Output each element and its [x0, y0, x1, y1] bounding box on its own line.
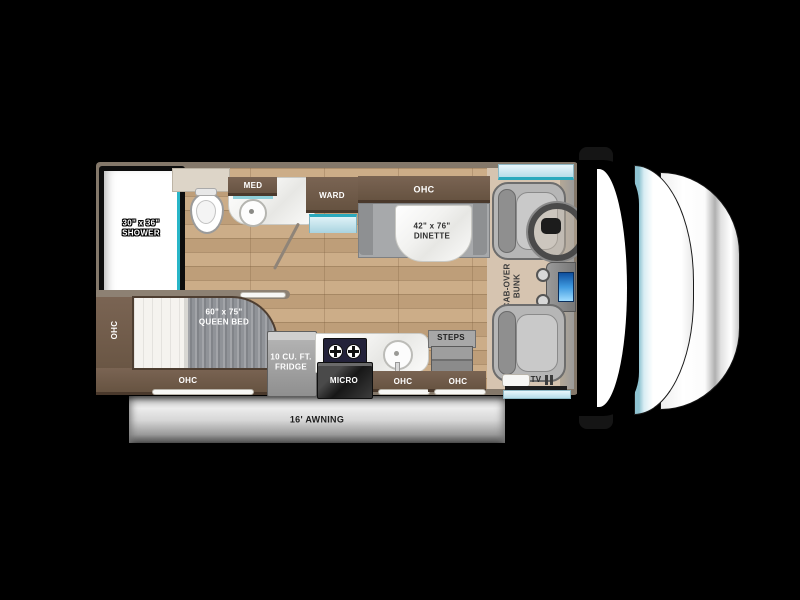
passenger-seat [492, 304, 566, 382]
steering-hub [541, 218, 561, 234]
cabover-bunk-label: CAB-OVER BUNK [502, 263, 521, 308]
vanity-sink-drain [249, 209, 254, 214]
dinette-bench-left [359, 204, 373, 255]
queen-bed-label: 60" x 75" QUEEN BED [199, 307, 249, 326]
microwave-label: MICRO [330, 376, 358, 386]
bottom-trim-3 [434, 389, 486, 395]
bed-blanket-folds [134, 298, 184, 368]
bottom-trim-2 [378, 389, 430, 395]
cab-window-bottom [503, 390, 571, 399]
kitchen-sink-drain [394, 351, 399, 356]
passenger-seat-cushion [516, 314, 558, 372]
ohc-bed-bottom-label: OHC [179, 376, 198, 386]
door-hinge-bottom-2 [550, 375, 553, 385]
floorplan-canvas: 16' AWNING 30" x 36" SHOWER MED WARD OHC… [0, 0, 800, 600]
burner-right-icon [346, 344, 361, 359]
med-label: MED [244, 181, 263, 191]
ohc-dinette-label: OHC [414, 185, 435, 196]
wardrobe-window [309, 214, 357, 233]
passenger-seat-back [498, 311, 516, 375]
ohc-left-label: OHC [110, 321, 120, 340]
console-screen [558, 272, 574, 302]
door-hinge-bottom-1 [545, 375, 548, 385]
tv-label: TV [531, 375, 542, 385]
wardrobe-label: WARD [319, 191, 345, 201]
burner-left-icon [328, 344, 343, 359]
shower-label: 30" x 36" SHOWER [122, 218, 160, 237]
bottom-trim-1 [152, 389, 254, 395]
speaker-knob-1 [536, 268, 550, 282]
awning-label: 16' AWNING [290, 415, 344, 426]
cab-window-top [498, 164, 574, 180]
ohc-entry-label: OHC [449, 377, 468, 387]
driver-seat-back [498, 189, 516, 253]
ohc-kitchen-label: OHC [394, 377, 413, 387]
toilet-tank [195, 188, 217, 196]
dinette-bench-right [473, 204, 487, 255]
fridge-label: 10 CU. FT. FRIDGE [270, 352, 311, 371]
divider-trim [240, 292, 286, 298]
dinette-label: 42" x 76" DINETTE [414, 221, 451, 240]
steps-label: STEPS [437, 333, 465, 343]
